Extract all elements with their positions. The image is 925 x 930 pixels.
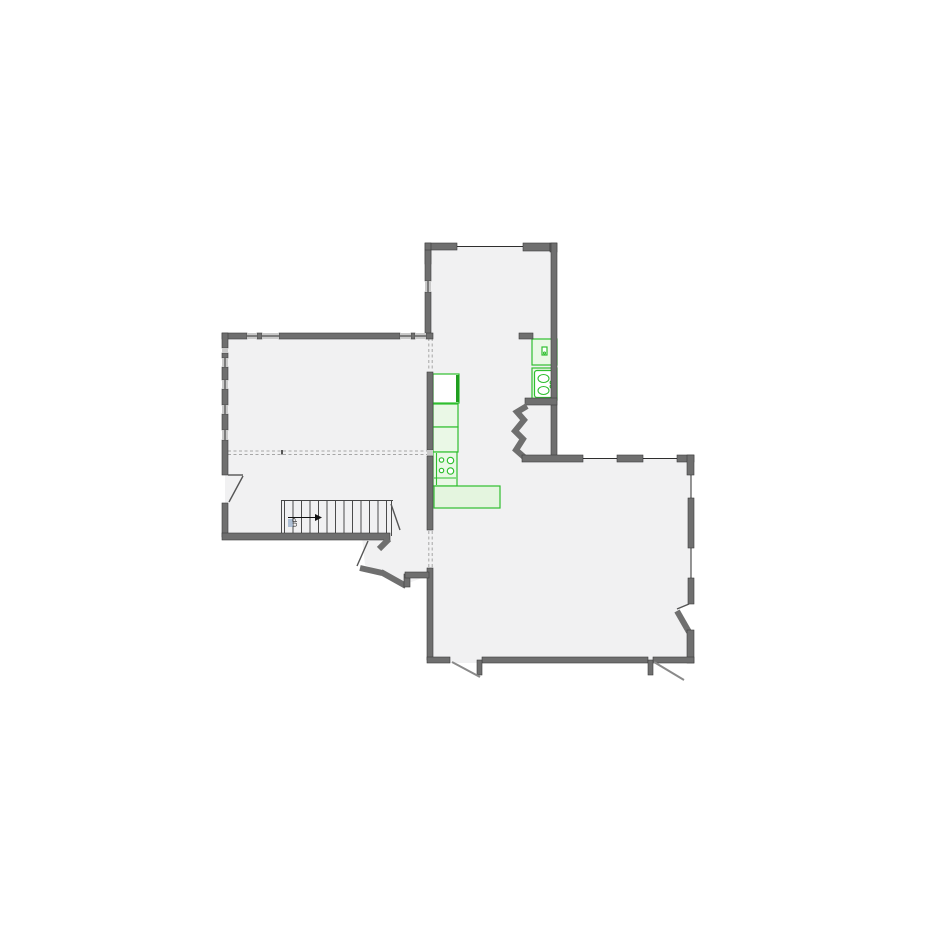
burner-icon [439, 458, 443, 462]
wall [523, 243, 550, 251]
wall [279, 333, 400, 339]
wall [427, 568, 433, 660]
floor-plan-canvas: UP [0, 0, 925, 925]
wall [257, 333, 262, 339]
wall [688, 498, 694, 548]
wall [482, 657, 648, 663]
wall [688, 578, 694, 604]
base-cabinet-icon [433, 427, 458, 452]
wall [222, 440, 228, 475]
wall [222, 503, 228, 537]
wall [617, 455, 643, 462]
wall [425, 250, 431, 281]
burner-icon [447, 457, 453, 463]
wall [222, 333, 228, 348]
wall [405, 572, 429, 578]
window [222, 348, 228, 353]
door-leaf [654, 662, 684, 680]
dashed-line-break-mark [281, 450, 283, 455]
wall [427, 657, 450, 663]
wall [425, 292, 431, 337]
wall [653, 657, 694, 663]
wall [222, 414, 228, 430]
wall-notch [427, 450, 433, 456]
island-counter-icon [434, 486, 500, 508]
refrigerator-door-icon [456, 375, 459, 402]
stairs-up-label: UP [292, 518, 299, 527]
base-cabinet-icon [433, 404, 458, 427]
wall [551, 243, 557, 460]
wall [222, 367, 228, 380]
wall [427, 456, 433, 530]
wall-stub [519, 333, 533, 339]
floor-plan: UP [0, 0, 925, 925]
left-room-floor [225, 336, 430, 537]
refrigerator-icon [433, 374, 459, 403]
wall [426, 333, 433, 339]
wall [427, 372, 433, 450]
wall [525, 398, 557, 405]
wall [222, 389, 228, 405]
kitchen-wall [427, 372, 433, 660]
range-4-burner-icon [433, 452, 457, 486]
wall [222, 353, 228, 358]
door-jamb [648, 660, 653, 675]
wall [411, 333, 415, 339]
burner-icon [447, 468, 453, 474]
wall-corner [687, 455, 694, 475]
door-leaf [452, 662, 480, 677]
wall [222, 533, 390, 540]
burner-icon [439, 468, 443, 472]
wall [522, 455, 583, 462]
door-jamb [477, 660, 482, 675]
